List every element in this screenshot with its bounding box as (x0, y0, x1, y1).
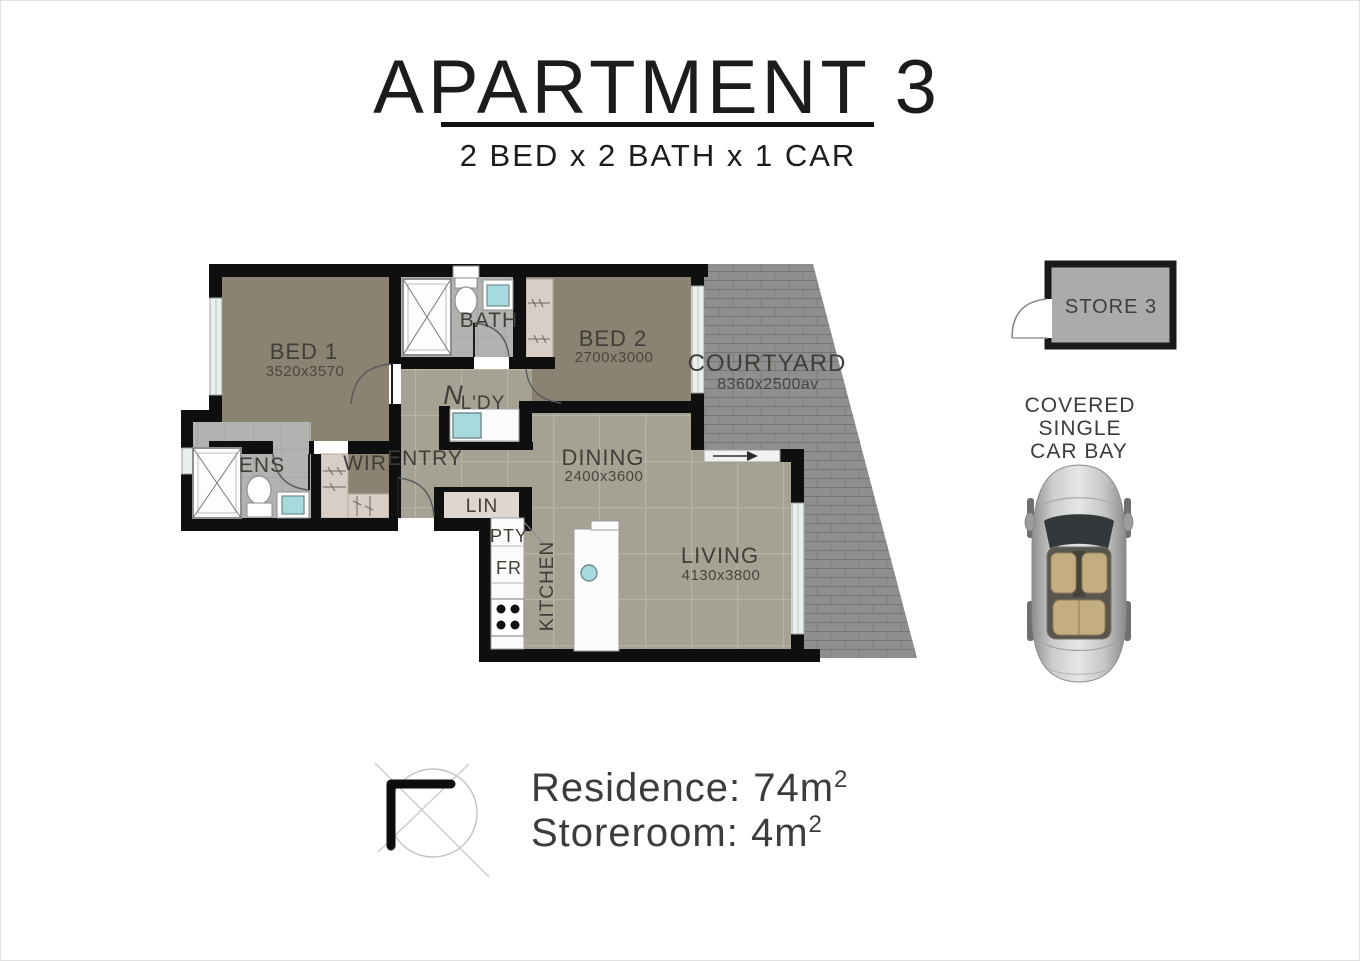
car-bay-line1: COVERED (1025, 394, 1136, 417)
label-entry: ENTRY (387, 447, 463, 470)
label-bed1: BED 1 (270, 339, 339, 364)
header: APARTMENT 3 2 BED x 2 BATH x 1 CAR (373, 45, 941, 173)
residence-area: Residence: 74m2 (531, 766, 848, 810)
title-underline (441, 122, 874, 127)
label-store: STORE 3 (1065, 296, 1157, 318)
wir-shelf-bottom (348, 494, 389, 518)
car-bay: COVERED SINGLE CAR BAY (1025, 394, 1136, 682)
floor-plan-page: APARTMENT 3 2 BED x 2 BATH x 1 CAR (0, 0, 1360, 961)
label-kitchen: KITCHEN (537, 541, 558, 631)
ens-shower-icon (193, 448, 241, 518)
stove-icon (491, 599, 524, 636)
north-point-icon (375, 763, 489, 877)
dims-living: 4130x3800 (682, 567, 761, 584)
label-ens: ENS (239, 454, 285, 477)
label-fr: FR (496, 558, 522, 578)
footer: Residence: 74m2 Storeroom: 4m2 (375, 763, 848, 877)
courtyard-sliding-door (704, 450, 780, 462)
label-bed2: BED 2 (579, 326, 648, 351)
page-subtitle: 2 BED x 2 BATH x 1 CAR (460, 138, 857, 173)
floor-plan-canvas: APARTMENT 3 2 BED x 2 BATH x 1 CAR (1, 1, 1360, 961)
label-lin: LIN (466, 496, 499, 517)
bath-shower-icon (403, 279, 451, 355)
kitchen-island (574, 521, 619, 651)
bed2-robe-shelf (526, 279, 553, 359)
store-room: STORE 3 (1012, 264, 1173, 346)
ens-window (182, 448, 193, 474)
label-bath: BATH (460, 309, 518, 332)
car-bay-line2: SINGLE (1038, 417, 1121, 440)
dims-dining: 2400x3600 (565, 468, 644, 485)
label-wir: WIR (343, 452, 387, 475)
bath-basin-icon (483, 280, 513, 310)
label-living: LIVING (681, 543, 759, 568)
label-courtyard: COURTYARD (688, 350, 847, 377)
car-icon (1025, 465, 1133, 682)
label-pty: PTY (490, 526, 528, 546)
label-ldy: L'DY (461, 393, 506, 414)
dims-courtyard: 8360x2500av (717, 376, 819, 393)
page-title: APARTMENT 3 (373, 45, 941, 130)
car-bay-line3: CAR BAY (1030, 440, 1128, 463)
dims-bed1: 3520x3570 (266, 363, 345, 380)
label-dining: DINING (562, 445, 645, 470)
ens-toilet-icon (247, 476, 272, 517)
dims-bed2: 2700x3000 (575, 349, 654, 366)
sink-icon (581, 565, 597, 581)
storeroom-area: Storeroom: 4m2 (531, 811, 823, 855)
ens-basin-icon (277, 492, 309, 518)
